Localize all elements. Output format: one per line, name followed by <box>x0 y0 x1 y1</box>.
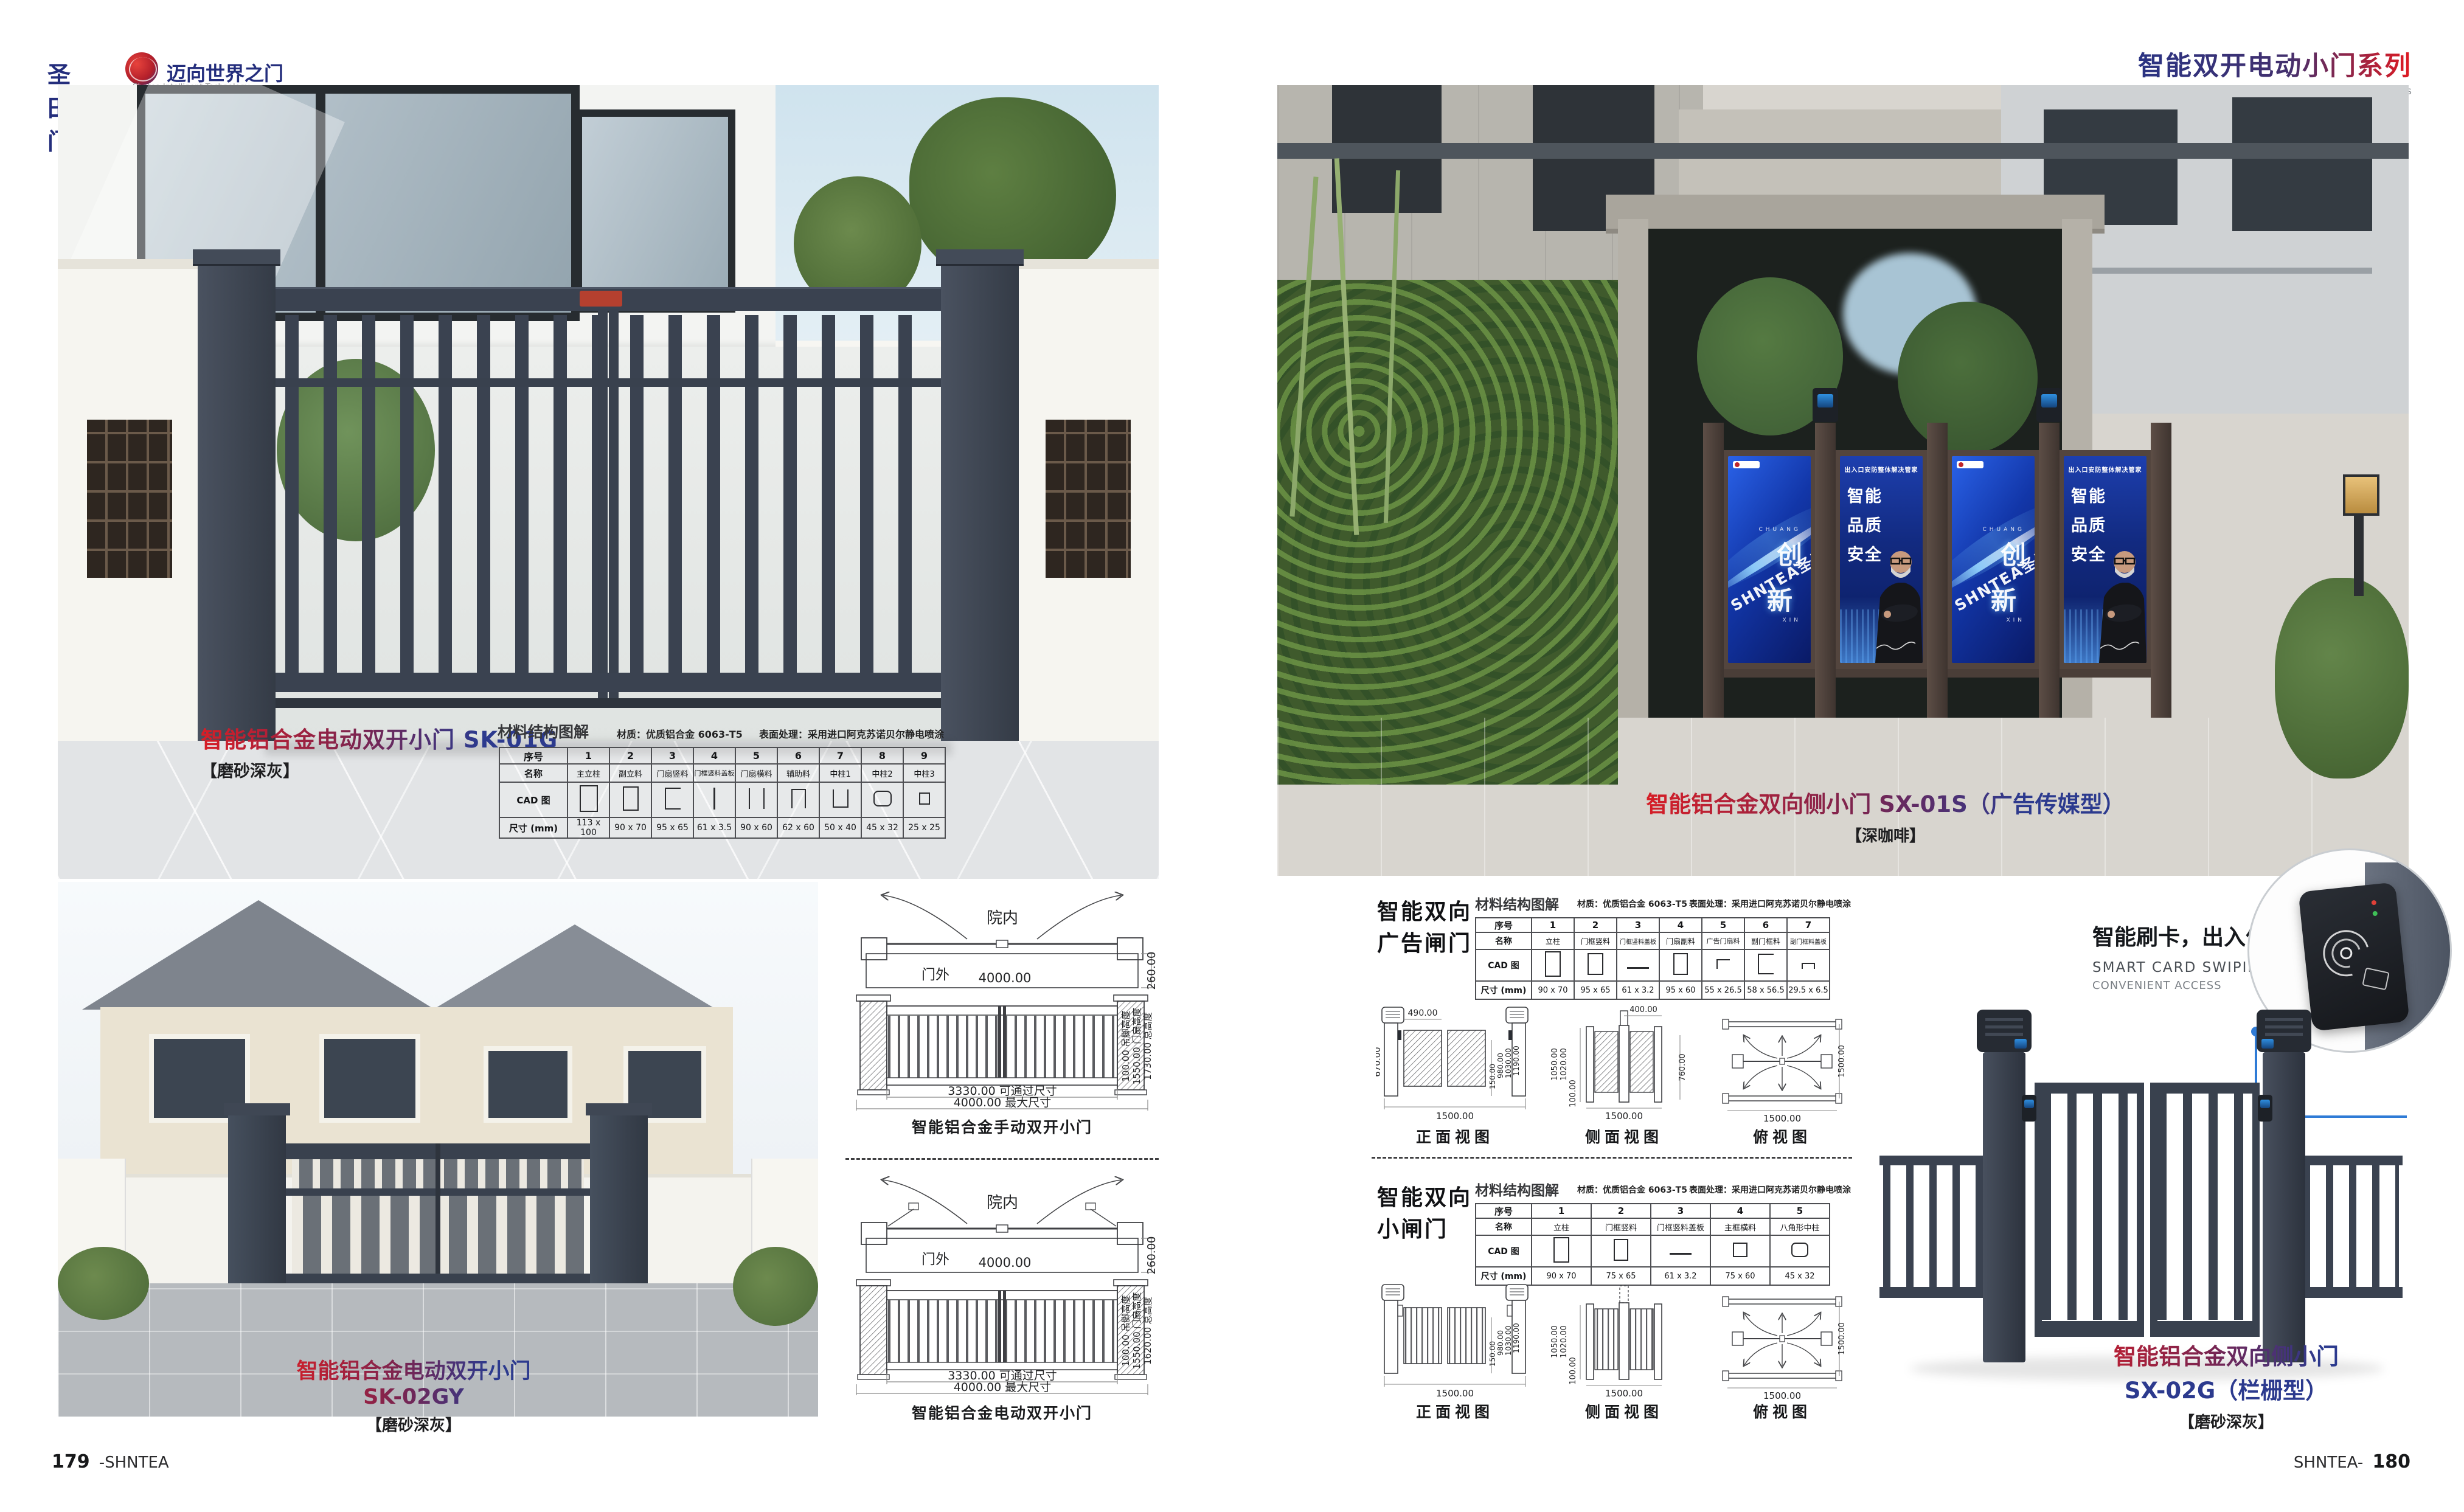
product-title-line1: 智能铝合金双向侧小门 <box>2056 1338 2396 1371</box>
wall-pilaster <box>58 268 202 785</box>
dim-inside: 院内 <box>987 909 1018 928</box>
dim-width: 4000.00 <box>979 1255 1032 1270</box>
gate-post <box>1703 423 1724 718</box>
globe-meridian-icon <box>129 57 157 81</box>
product-finish: 【磨砂深灰】 <box>277 1413 550 1435</box>
catalog-spread: 圣田门 迈向世界之门 Shntea Intelligent Technology… <box>0 0 2464 1512</box>
dim-depth: 260.00 <box>1145 952 1158 990</box>
gate-post <box>1983 1052 2025 1362</box>
view-caption: 正面视图 <box>1376 1400 1534 1422</box>
view-side-ad: 1050.00 1020.00 100.00 400.00 760.00 150… <box>1551 1004 1697 1125</box>
dim: 760.00 <box>1678 1053 1687 1081</box>
footer-brand: SHNTEA- <box>2294 1454 2363 1472</box>
post-head-device <box>2257 1010 2311 1052</box>
gate-bottom-rail <box>276 673 941 692</box>
dim-v3: 1730.00 总高度 <box>1142 1012 1153 1080</box>
material-spec: 材质：优质铝合金 6063-T5 <box>1577 898 1687 910</box>
profile-glyph <box>1553 1237 1569 1263</box>
gate-leaves <box>276 287 941 741</box>
canopy-line <box>1277 143 2409 159</box>
gate-pillar <box>198 262 276 785</box>
dim: 150.00 <box>1488 1064 1497 1089</box>
dim: 1190.00 <box>1512 1046 1521 1076</box>
gate-sign <box>580 291 622 307</box>
surface-spec: 表面处理：采用进口阿克苏诺贝尔静电喷涂 <box>1689 898 1851 910</box>
card-reader <box>2022 1095 2036 1122</box>
section-heading-small: 智能双向 小闸门 <box>1377 1182 1480 1246</box>
profile-glyph <box>1758 954 1774 974</box>
gate-leaf <box>2035 1083 2144 1350</box>
profile-glyph <box>1791 1243 1808 1257</box>
series-title: 智能双开电动小门系列 <box>2138 45 2412 83</box>
dim: 1500.00 <box>1605 1111 1643 1122</box>
dim-v1: 100.00 吊脚高度 <box>1120 1010 1131 1081</box>
dim: 980.00 <box>1496 1330 1505 1356</box>
table-heading: 材料结构图解 <box>1475 893 1559 914</box>
card-reader <box>1813 388 1838 422</box>
dashed-divider <box>1372 1157 1852 1159</box>
dim-inside: 院内 <box>987 1194 1018 1212</box>
bush <box>733 1247 818 1326</box>
window <box>484 1046 572 1123</box>
product-label-sx02g: 智能铝合金双向侧小门 SX-02G（栏栅型） 【磨砂深灰】 <box>2056 1338 2396 1432</box>
dim-v2: 1550.00 门扇高度 <box>1131 1008 1142 1085</box>
spec-table: 序号 12 34 5 名称 立柱门框竖料 门框竖料盖板主框横料 八角形中柱 CA… <box>1475 1203 1830 1286</box>
dim: 1030.00 <box>1504 1048 1513 1078</box>
product-label-sk02gy: 智能铝合金电动双开小门 SK-02GY 【磨砂深灰】 <box>277 1354 550 1435</box>
wall-pilaster <box>1016 268 1159 785</box>
footer-right: SHNTEA- 180 <box>2294 1451 2410 1472</box>
spec-table: 序号 12 34 56 78 9 名称 主立柱副立料 门扇竖料门框竖料盖板 门扇… <box>499 747 946 839</box>
dim: 980.00 <box>1496 1053 1505 1078</box>
product-label-sx01s: 智能铝合金双向侧小门 SX-01S（广告传媒型） 【深咖啡】 <box>1642 786 2129 846</box>
glass-window <box>575 109 735 313</box>
profile-glyph <box>1588 953 1603 975</box>
dim: 100.00 <box>1569 1357 1578 1385</box>
side-grille <box>2299 1156 2403 1314</box>
spec-table: 序号 12 34 56 7 名称 立柱门框竖料 门框竖料盖板门扇副料 广告门扇料… <box>1475 917 1830 1000</box>
view-side-small: 1050.00 1020.00 100.00 1500.00 <box>1551 1281 1697 1403</box>
table-heading: 材料结构图解 <box>498 720 589 742</box>
footer-left: 179 -SHNTEA <box>52 1451 169 1472</box>
gate-post <box>1815 423 1836 718</box>
surface-spec: 表面处理：采用进口阿克苏诺贝尔静电喷涂 <box>1689 1184 1851 1196</box>
shrub <box>2275 578 2409 779</box>
view-front-ad: 490.00 670.00 150.00 980.00 1030.00 1190… <box>1376 1004 1534 1125</box>
roof-gable <box>423 924 727 1016</box>
dim: 1500.00 <box>1436 1111 1474 1122</box>
gate-leaf <box>2150 1083 2260 1350</box>
profile-glyph <box>1716 959 1730 969</box>
profile-glyph <box>1802 963 1815 969</box>
dim-v1: 100.00 吊脚高度 <box>1120 1295 1131 1366</box>
profile-glyph <box>580 785 598 812</box>
dim: 490.00 <box>1408 1008 1438 1018</box>
arch-column <box>1618 219 1648 718</box>
poster-quality: 出入口安防整体解决管家 智能 品质 安全 <box>1840 456 1923 663</box>
profile-glyph <box>1673 953 1688 975</box>
dashed-divider <box>845 1158 1159 1160</box>
profile-glyph <box>873 791 892 806</box>
view-caption: 俯视图 <box>1715 1400 1849 1422</box>
profile-glyph <box>713 788 715 810</box>
view-top-small: 1500.00 1500.00 <box>1715 1281 1849 1403</box>
ivy-wall <box>1277 280 1618 785</box>
material-spec: 材质：优质铝合金 6063-T5 <box>1577 1184 1687 1196</box>
view-front-small: 150.00 980.00 1030.00 1190.00 1500.00 <box>1376 1281 1534 1403</box>
profile-glyph <box>791 789 806 808</box>
view-caption: 正面视图 <box>1376 1125 1534 1147</box>
section-heading-ad: 智能双向 广告闸门 <box>1377 896 1480 960</box>
card-reader <box>2258 1095 2272 1122</box>
lattice-screen <box>1046 420 1131 578</box>
dim-v2: 1550.00 门扇高度 <box>1131 1292 1142 1370</box>
dim-outside: 门外 <box>921 1252 949 1268</box>
profile-glyph <box>1733 1243 1747 1257</box>
view-caption: 侧面视图 <box>1551 1125 1697 1147</box>
profile-glyph <box>623 786 639 811</box>
profile-glyph <box>1545 951 1561 977</box>
profile-glyph <box>749 788 765 809</box>
cad-manual-gate-drawing: 院内 门外 4000.00 260.00 <box>845 883 1159 1114</box>
dim: 1500.00 <box>1605 1388 1643 1399</box>
dim: 400.00 <box>1629 1005 1657 1014</box>
dim: 1500.00 <box>1763 1113 1801 1124</box>
dim-outside: 门外 <box>921 967 949 983</box>
poster-logo <box>1957 461 1983 468</box>
view-caption: 侧面视图 <box>1551 1400 1697 1422</box>
profile-glyph <box>1627 967 1649 969</box>
product-title-line2: SX-02G（栏栅型） <box>2056 1372 2396 1405</box>
dim: 1020.00 <box>1560 1048 1569 1081</box>
dim: 1030.00 <box>1504 1325 1513 1356</box>
poster-innovation: CHUANG 创 新 XIN SHNTEA圣田 <box>1952 456 2035 663</box>
dim: 1190.00 <box>1512 1323 1521 1353</box>
lamp-post <box>2354 505 2364 596</box>
gate-post <box>1927 423 1948 718</box>
bush <box>58 1247 149 1320</box>
surface-spec: 表面处理：采用进口阿克苏诺贝尔静电喷涂 <box>759 726 944 741</box>
profile-glyph <box>919 792 930 805</box>
roof-gable <box>82 900 435 1010</box>
product-finish: 【磨砂深灰】 <box>2056 1410 2396 1432</box>
dim: 1050.00 <box>1551 1048 1560 1081</box>
cad-diagrams-left: 院内 门外 4000.00 260.00 <box>845 883 1159 1437</box>
gate-bars <box>285 315 931 673</box>
poster-innovation: CHUANG 创 新 XIN SHNTEA圣田 <box>1728 456 1811 663</box>
profile-glyph <box>1614 1239 1628 1261</box>
gate-pillar <box>941 262 1019 785</box>
window <box>319 1034 420 1123</box>
dim-depth: 260.00 <box>1145 1236 1158 1275</box>
profile-glyph <box>665 788 681 810</box>
view-top-ad: 1500.00 1500.00 <box>1715 1004 1849 1125</box>
dim-v3: 1620.00 总高度 <box>1142 1297 1153 1365</box>
dim: 100.00 <box>1569 1080 1578 1108</box>
table-heading: 材料结构图解 <box>1475 1179 1559 1199</box>
cad-caption: 智能铝合金电动双开小门 <box>845 1401 1159 1423</box>
photo-sx02g <box>1873 973 2409 1399</box>
gate-post <box>2039 423 2060 718</box>
view-caption: 俯视图 <box>1715 1125 1849 1147</box>
dim: 670.00 <box>1376 1047 1383 1077</box>
lamp <box>2343 474 2379 516</box>
poster-logo <box>1733 461 1760 468</box>
arch-lintel <box>1606 195 2105 234</box>
product-title: 智能铝合金电动双开小门 SK-02GY <box>277 1354 550 1409</box>
lattice-screen <box>87 420 172 578</box>
post-head-device <box>1977 1010 2032 1052</box>
photo-sx01s: CHUANG 创 新 XIN SHNTEA圣田 出入口安防整体解决管家 智能 品… <box>1277 85 2409 876</box>
dim: 1050.00 <box>1551 1325 1560 1358</box>
poster-quality: 出入口安防整体解决管家 智能 品质 安全 <box>2064 456 2146 663</box>
dim: 1020.00 <box>1560 1325 1569 1358</box>
cad-electric-gate-drawing: 院内 门外 4000.00 260.00 <box>845 1168 1159 1399</box>
dim: 1500.00 <box>1436 1388 1474 1399</box>
profile-glyph <box>1670 1253 1692 1255</box>
page-number: 179 <box>52 1451 90 1472</box>
dim: 150.00 <box>1488 1341 1497 1367</box>
material-spec: 材质：优质铝合金 6063-T5 <box>617 726 743 741</box>
product-finish: 【深咖啡】 <box>1642 824 2129 846</box>
dim-max: 4000.00 最大尺寸 <box>954 1096 1052 1109</box>
gate-mid-rail <box>276 378 941 387</box>
product-title: 智能铝合金双向侧小门 SX-01S（广告传媒型） <box>1642 786 2129 819</box>
spokesman-figure <box>1872 535 1923 663</box>
led-red <box>2371 900 2376 906</box>
dim-width: 4000.00 <box>979 971 1032 985</box>
dim: 1500.00 <box>1838 1322 1847 1355</box>
footer-brand: -SHNTEA <box>99 1454 169 1472</box>
side-grille <box>1879 1156 1989 1314</box>
gate-post <box>2151 423 2171 718</box>
card-reader <box>2036 388 2062 422</box>
dim-max: 4000.00 最大尺寸 <box>954 1381 1052 1394</box>
photo-sk02gy <box>58 882 818 1417</box>
spokesman-figure <box>2095 535 2146 663</box>
dim: 1500.00 <box>1838 1045 1847 1078</box>
led-green <box>2372 911 2378 917</box>
cad-caption: 智能铝合金手动双开小门 <box>845 1115 1159 1137</box>
profile-glyph <box>833 789 849 808</box>
page-number: 180 <box>2372 1451 2410 1472</box>
